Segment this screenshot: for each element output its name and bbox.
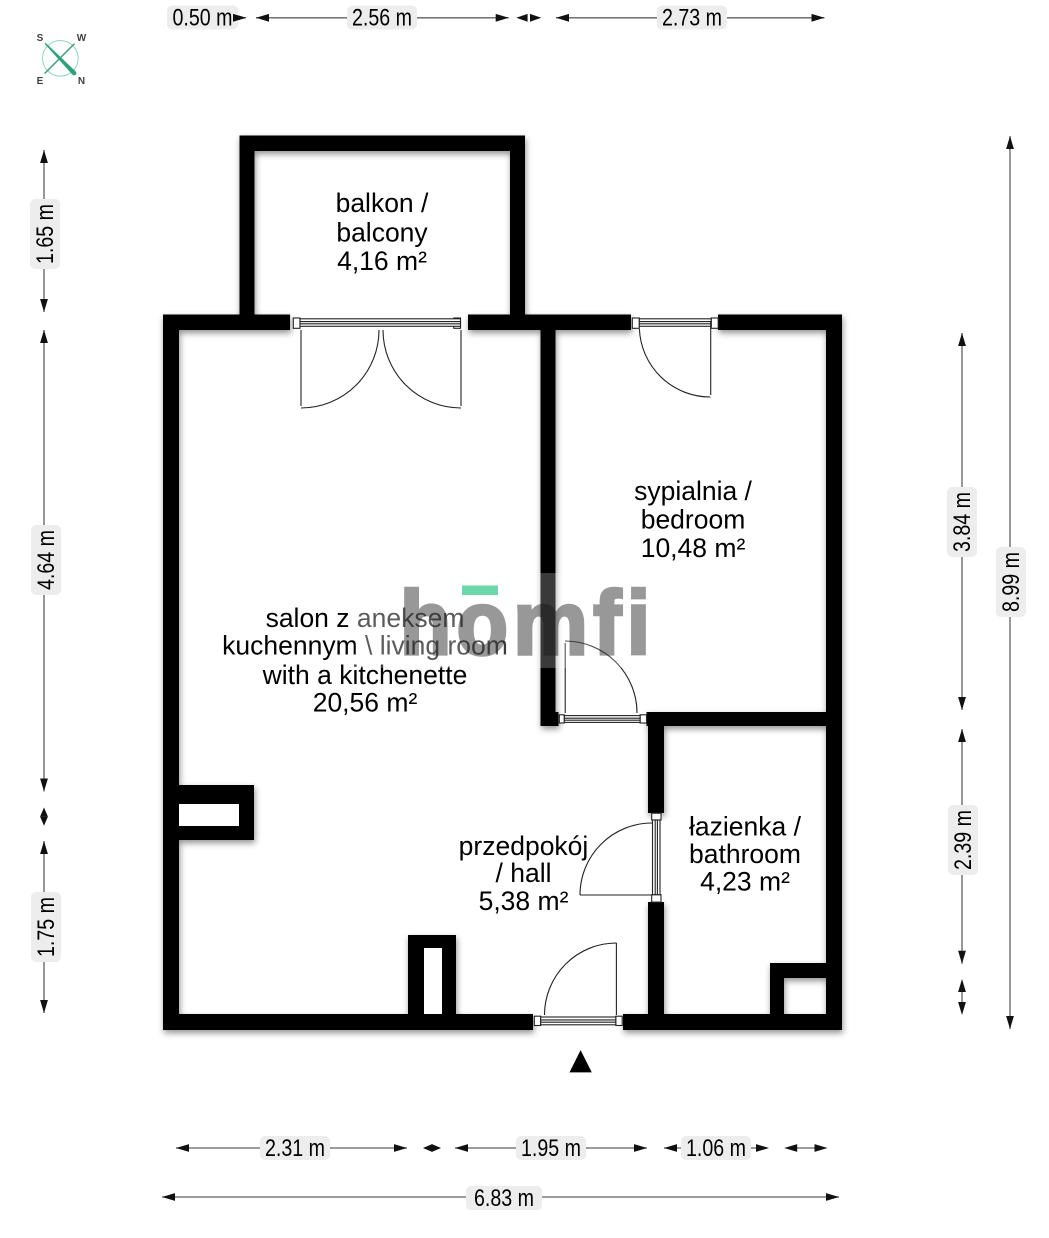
svg-text:bedroom: bedroom	[641, 505, 746, 535]
svg-text:sypialnia /: sypialnia /	[634, 476, 752, 506]
svg-text:N: N	[78, 76, 85, 87]
svg-text:1.65 m: 1.65 m	[32, 204, 59, 264]
svg-text:1.06 m: 1.06 m	[686, 1135, 746, 1162]
svg-text:2.31 m: 2.31 m	[265, 1135, 325, 1162]
svg-text:1.95 m: 1.95 m	[521, 1135, 581, 1162]
svg-text:4.64 m: 4.64 m	[33, 530, 60, 590]
svg-text:4,23 m²: 4,23 m²	[700, 866, 790, 896]
svg-text:S: S	[37, 33, 44, 44]
svg-text:łazienka /: łazienka /	[689, 812, 802, 842]
svg-text:/ hall: / hall	[496, 858, 552, 888]
svg-text:bathroom: bathroom	[689, 839, 801, 869]
svg-text:homfi: homfi	[400, 573, 656, 673]
svg-text:8.99 m: 8.99 m	[998, 552, 1025, 612]
svg-text:1.75 m: 1.75 m	[33, 897, 60, 957]
svg-text:balkon /: balkon /	[336, 188, 429, 218]
svg-text:2.73 m: 2.73 m	[662, 5, 722, 32]
svg-text:E: E	[37, 76, 44, 87]
svg-text:6.83 m: 6.83 m	[474, 1185, 534, 1212]
svg-text:przedpokój: przedpokój	[459, 831, 589, 861]
svg-text:20,56 m²: 20,56 m²	[313, 688, 418, 718]
svg-text:W: W	[77, 33, 87, 44]
svg-text:3.84 m: 3.84 m	[949, 492, 976, 552]
svg-text:2.56 m: 2.56 m	[352, 5, 412, 32]
svg-text:5,38 m²: 5,38 m²	[479, 886, 569, 916]
svg-text:2.39 m: 2.39 m	[950, 810, 977, 870]
svg-text:10,48 m²: 10,48 m²	[641, 533, 746, 563]
svg-text:0.50 m: 0.50 m	[173, 5, 233, 32]
svg-text:4,16 m²: 4,16 m²	[337, 246, 427, 276]
svg-text:balcony: balcony	[336, 218, 428, 248]
